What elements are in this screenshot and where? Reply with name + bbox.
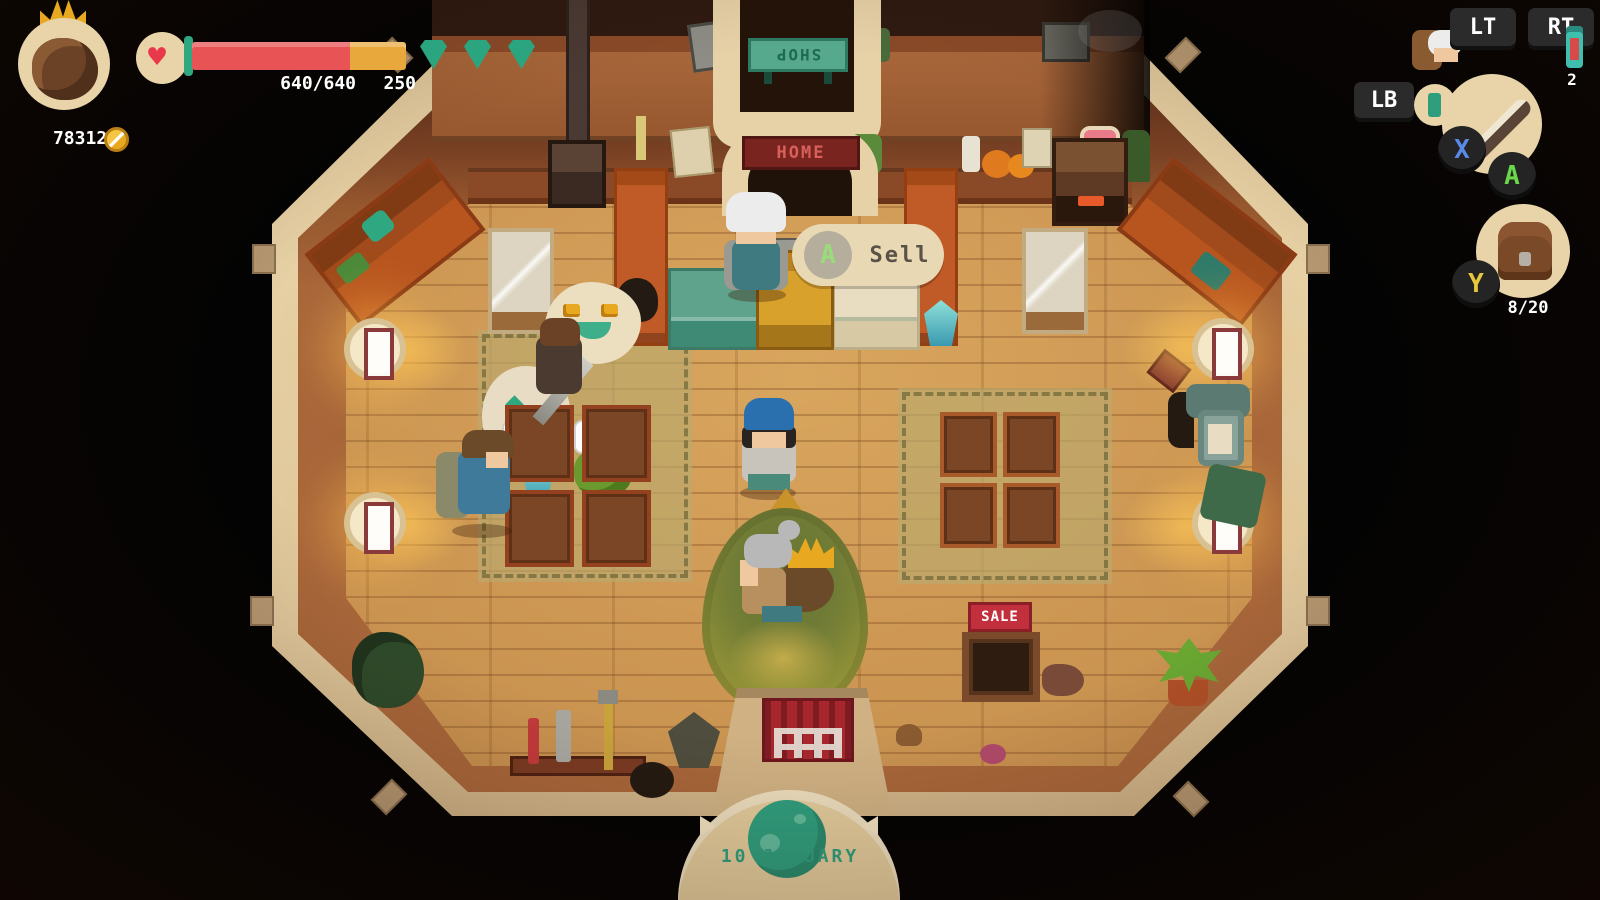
axe-head-icon bbox=[598, 690, 618, 704]
lt-button[interactable]: LT bbox=[1450, 8, 1516, 46]
beam-stub bbox=[1306, 596, 1330, 626]
lt-label: LT bbox=[1470, 15, 1497, 40]
round-window bbox=[344, 492, 406, 554]
gold-staff-icon bbox=[604, 696, 613, 770]
a-button-icon: A bbox=[804, 231, 852, 279]
display-case-left bbox=[488, 228, 554, 334]
a-button-letter: A bbox=[820, 240, 836, 270]
table-panel bbox=[582, 405, 651, 482]
smoke-puff bbox=[1078, 10, 1142, 52]
shopkeeper-body bbox=[724, 240, 788, 290]
y-label: Y bbox=[1468, 269, 1484, 299]
table-panel bbox=[940, 483, 997, 548]
shelf-bottle bbox=[962, 136, 980, 172]
wall-poster bbox=[670, 126, 715, 178]
shelf-notes bbox=[1022, 128, 1052, 168]
health-value: 640/640 bbox=[250, 73, 356, 94]
sell-prompt[interactable]: A Sell bbox=[792, 224, 944, 286]
date-label: 10 JANUARY bbox=[690, 846, 890, 867]
beam-stub bbox=[252, 244, 276, 274]
game-screen: SHOP HOME A bbox=[0, 0, 1600, 900]
shop-sign: SHOP bbox=[748, 38, 848, 72]
lantern-glow bbox=[728, 618, 838, 698]
display-case-right bbox=[1022, 228, 1088, 334]
amulet-icon bbox=[1428, 93, 1441, 117]
shadow bbox=[728, 288, 786, 302]
furnace bbox=[548, 140, 606, 208]
armor-cape bbox=[1199, 463, 1267, 530]
granny-hair-bun bbox=[778, 520, 800, 540]
x-label: X bbox=[1454, 135, 1470, 165]
table-panel bbox=[505, 490, 574, 567]
table-panel bbox=[582, 490, 651, 567]
dark-pot bbox=[630, 762, 674, 798]
table-panel bbox=[1003, 412, 1060, 477]
candle-icon bbox=[636, 116, 646, 160]
round-window bbox=[344, 318, 406, 380]
shield-value: 250 bbox=[372, 73, 416, 94]
avatar-bag bbox=[32, 38, 98, 100]
roaster-machine bbox=[1052, 138, 1128, 226]
banner-decor bbox=[862, 816, 878, 836]
ember-glow bbox=[1078, 196, 1104, 206]
a-button[interactable]: A bbox=[1488, 152, 1536, 200]
granny-npc-pants bbox=[762, 606, 802, 622]
flower-item bbox=[980, 744, 1006, 764]
beam-stub bbox=[250, 596, 274, 626]
emote-eye bbox=[563, 304, 580, 317]
beanie-npc-face bbox=[752, 432, 786, 448]
armor-statue bbox=[1168, 384, 1264, 534]
npc-head-face bbox=[1434, 48, 1458, 62]
health-bar bbox=[192, 42, 350, 70]
banner-decor bbox=[700, 816, 716, 836]
a-label: A bbox=[1504, 161, 1520, 191]
lb-button[interactable]: LB bbox=[1354, 82, 1414, 118]
backpack-icon bbox=[1498, 222, 1552, 280]
beam-stub bbox=[1165, 37, 1202, 74]
potion-count: 2 bbox=[1560, 70, 1584, 89]
entrance-mat-grid bbox=[774, 728, 842, 758]
inventory-count: 8/20 bbox=[1496, 298, 1560, 318]
beanie-npc-hat bbox=[744, 398, 794, 430]
armor-plate bbox=[1208, 424, 1232, 454]
red-sword-icon bbox=[528, 718, 539, 764]
display-table-right bbox=[940, 412, 1060, 548]
beam-stub bbox=[1173, 781, 1210, 818]
table-panel bbox=[1003, 483, 1060, 548]
home-sign-label: HOME bbox=[777, 143, 826, 163]
home-sign: HOME bbox=[742, 136, 860, 170]
round-window bbox=[1192, 318, 1254, 380]
y-button[interactable]: Y bbox=[1452, 260, 1500, 308]
sack-item bbox=[1042, 664, 1084, 696]
potion-icon bbox=[1566, 26, 1583, 68]
x-button[interactable]: X bbox=[1438, 126, 1486, 174]
sale-crate[interactable] bbox=[962, 632, 1040, 702]
beam-stub bbox=[371, 779, 408, 816]
emote-smile bbox=[575, 322, 611, 339]
rt-button[interactable]: RT bbox=[1528, 8, 1594, 46]
sale-sign-label: SALE bbox=[981, 609, 1019, 625]
shield-bar bbox=[350, 42, 406, 70]
chimney-pipe bbox=[566, 0, 590, 152]
shadow bbox=[452, 524, 512, 538]
heart-icon: ♥ bbox=[148, 40, 166, 75]
gray-sword-icon bbox=[556, 710, 571, 762]
sell-label: Sell bbox=[862, 243, 938, 268]
shopkeeper-hair bbox=[726, 192, 786, 232]
display-table-left bbox=[505, 405, 651, 567]
sign-leg bbox=[824, 72, 832, 84]
lb-label: LB bbox=[1371, 88, 1398, 113]
emote-eye bbox=[601, 304, 618, 317]
sign-leg bbox=[764, 72, 772, 84]
dark-plant bbox=[352, 632, 424, 708]
sale-sign: SALE bbox=[968, 602, 1032, 632]
mushroom-icon bbox=[896, 724, 922, 746]
coin-icon bbox=[104, 127, 129, 152]
table-panel bbox=[940, 412, 997, 477]
traveler-npc-face bbox=[486, 452, 508, 468]
shop-sign-label: SHOP bbox=[775, 46, 822, 65]
beam-stub bbox=[1306, 244, 1330, 274]
swordsman-npc-hair bbox=[540, 318, 580, 346]
